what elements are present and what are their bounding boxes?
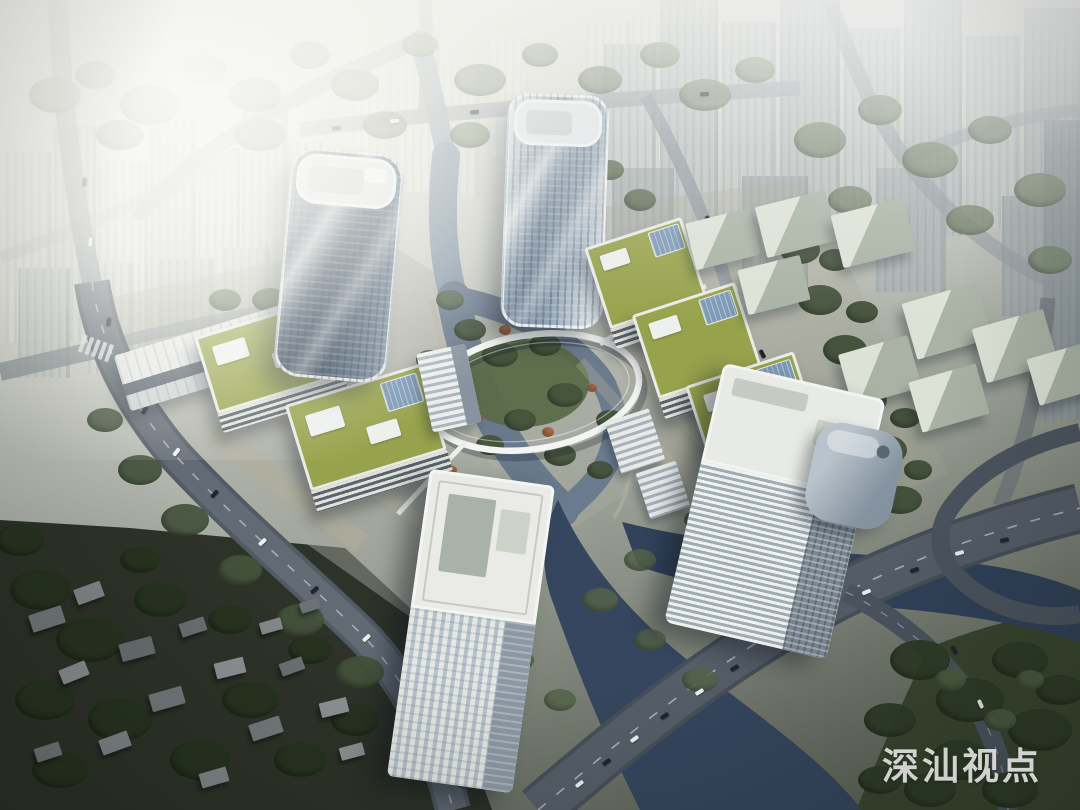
vignette xyxy=(0,0,1080,810)
aerial-render: 深汕视点 xyxy=(0,0,1080,810)
watermark-text: 深汕视点 xyxy=(882,736,1042,790)
